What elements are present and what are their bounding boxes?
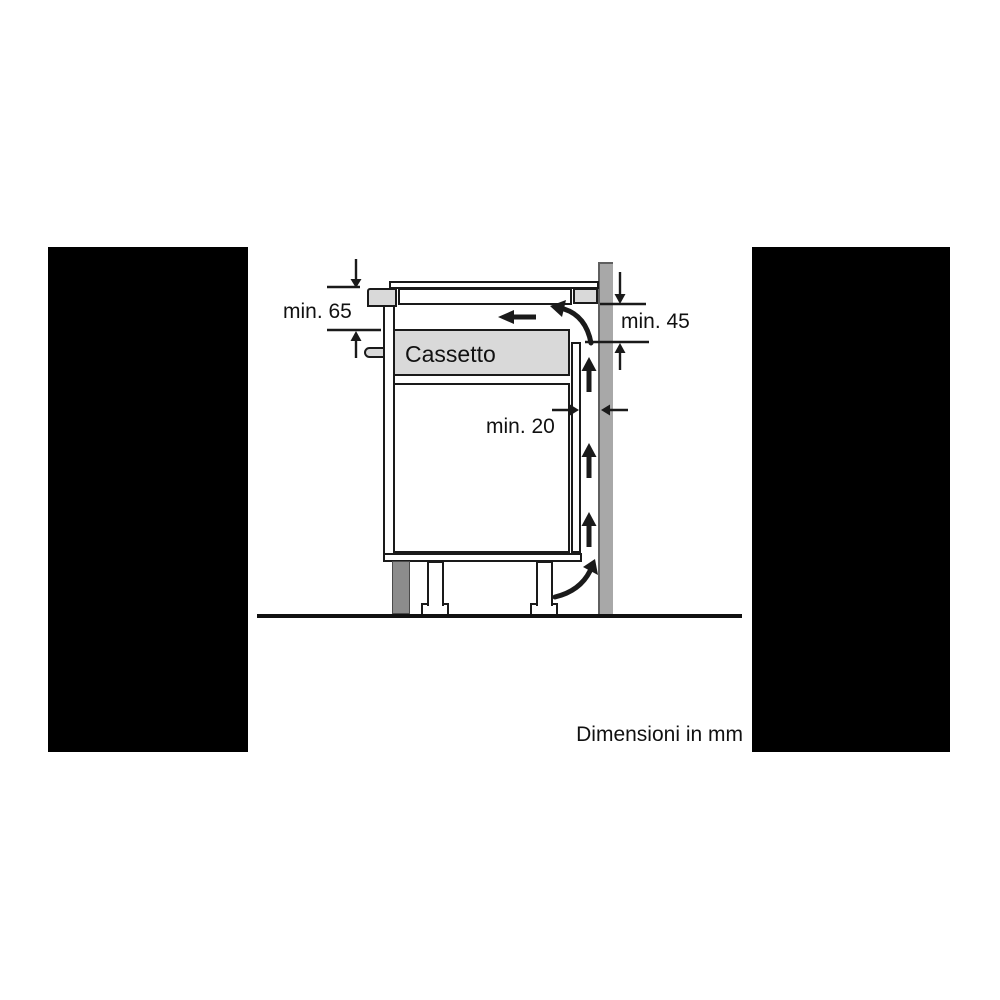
units-note: Dimensioni in mm xyxy=(540,723,743,746)
drawer-box: Cassetto xyxy=(393,329,570,376)
leg-left xyxy=(427,561,444,606)
dim-arrow-up-icon xyxy=(351,331,362,358)
rear-vent-panel xyxy=(571,342,581,553)
leg-right xyxy=(536,561,553,606)
wall-section xyxy=(598,262,613,614)
dim-arrow-up-icon xyxy=(615,343,626,370)
hob-glass-top xyxy=(389,281,599,289)
airflow-up-arrow-icon xyxy=(582,512,597,547)
airflow-up-arrow-icon xyxy=(582,357,597,392)
dim-arrow-down-icon xyxy=(351,259,362,288)
installation-diagram: Cassetto min. 65 min. 45 min. 20 xyxy=(0,0,1000,1000)
hob-body xyxy=(398,288,572,305)
intake-curve-bottom-icon xyxy=(555,559,598,597)
floor-line xyxy=(257,614,742,618)
worktop-right-section xyxy=(573,288,598,304)
screenshot-root: Cassetto min. 65 min. 45 min. 20 xyxy=(0,0,1000,1000)
cabinet-body xyxy=(393,383,570,553)
airflow-up-arrow-icon xyxy=(582,443,597,478)
dim-label-min65: min. 65 xyxy=(283,301,352,323)
dim-label-min45: min. 45 xyxy=(621,311,690,333)
dim-arrow-down-icon xyxy=(615,272,626,304)
exhaust-left-arrow-icon xyxy=(498,310,536,324)
dim-label-min20: min. 20 xyxy=(486,416,555,438)
drawer-label: Cassetto xyxy=(405,342,496,366)
plinth xyxy=(392,561,410,614)
